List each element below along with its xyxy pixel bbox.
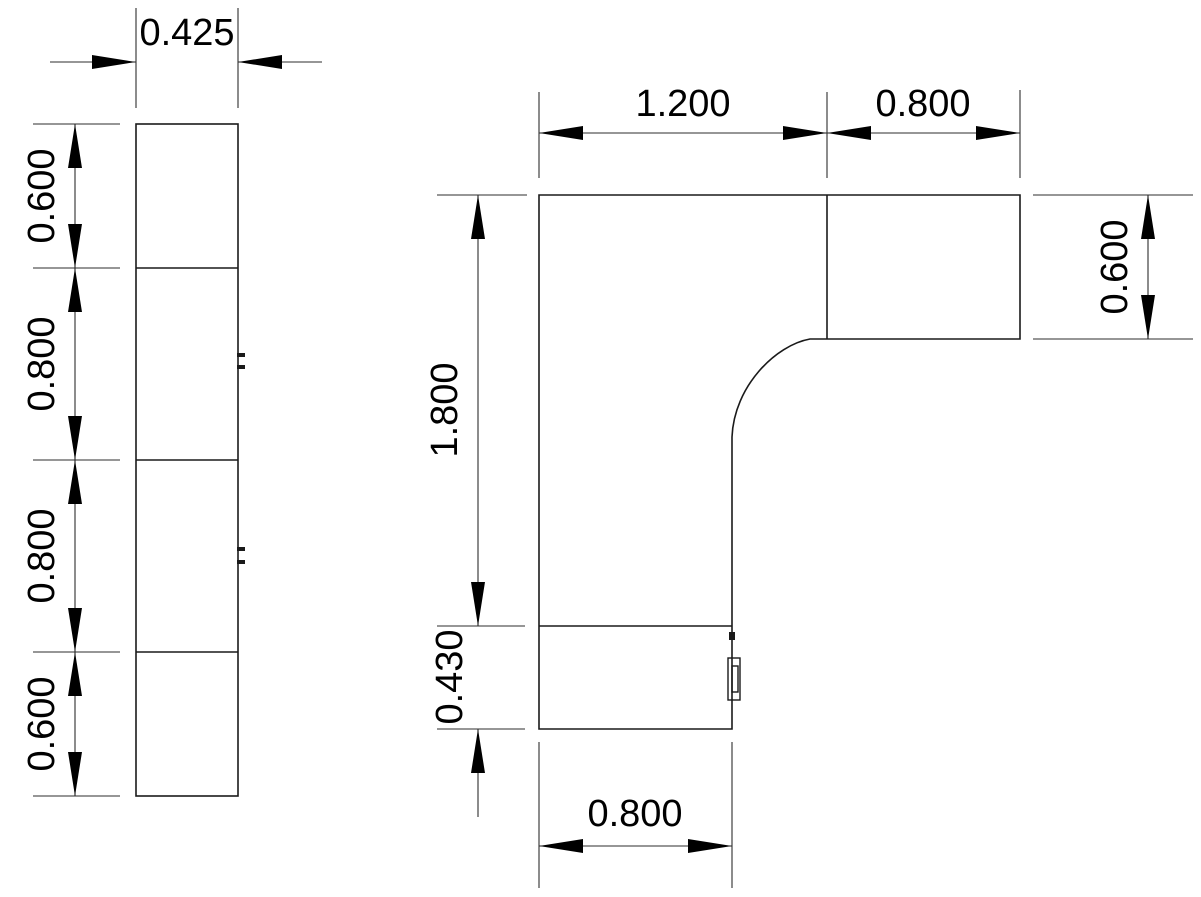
arrowhead-up-icon xyxy=(68,124,82,168)
dimension-label: 0.600 xyxy=(21,148,63,243)
arrowhead-down-icon xyxy=(68,752,82,796)
dimension-label: 0.600 xyxy=(1094,219,1136,314)
arrowhead-down-icon xyxy=(471,582,485,626)
arrowhead-right-icon xyxy=(92,55,136,69)
side-view-width-dimension: 0.425 xyxy=(50,8,322,108)
arrowhead-right-icon xyxy=(976,126,1020,140)
arrowhead-left-icon xyxy=(827,126,871,140)
plan-view-bottom-dimension: 0.800 xyxy=(539,742,732,888)
dimension-label: 1.800 xyxy=(424,362,466,457)
side-view xyxy=(136,124,245,796)
arrowhead-up-icon xyxy=(68,460,82,504)
connector-mark xyxy=(237,353,245,357)
arrowhead-up-icon xyxy=(471,195,485,239)
arrowhead-down-icon xyxy=(68,608,82,652)
arrowhead-up-icon xyxy=(68,268,82,312)
dimension-label: 0.800 xyxy=(875,83,970,125)
edge-clip-mark xyxy=(729,632,735,640)
plan-view-outline xyxy=(539,195,1020,729)
plan-view-left-dimensions: 1.800 0.430 xyxy=(424,195,527,817)
plan-view-right-dimension: 0.600 xyxy=(1033,195,1193,339)
connector-mark xyxy=(237,560,245,564)
arrowhead-right-icon xyxy=(688,839,732,853)
side-view-height-dimensions: 0.600 0.800 0.800 0.600 xyxy=(21,124,120,796)
connector-mark xyxy=(237,547,245,551)
arrowhead-up-icon xyxy=(68,652,82,696)
edge-bracket-inner xyxy=(732,666,738,692)
technical-drawing: 0.425 0.600 0.800 0.800 0.600 xyxy=(0,0,1201,897)
arrowhead-left-icon xyxy=(539,839,583,853)
arrowhead-down-icon xyxy=(68,416,82,460)
dimension-label: 1.200 xyxy=(635,83,730,125)
plan-view-top-dimensions: 1.200 0.800 xyxy=(539,83,1020,178)
dimension-label: 0.425 xyxy=(139,12,234,54)
dimension-label: 0.430 xyxy=(429,629,471,724)
arrowhead-down-icon xyxy=(68,224,82,268)
dimension-label: 0.800 xyxy=(21,508,63,603)
dimension-label: 0.800 xyxy=(587,793,682,835)
dimension-label: 0.600 xyxy=(21,676,63,771)
arrowhead-up-icon xyxy=(1141,195,1155,239)
arrowhead-left-icon xyxy=(238,55,282,69)
arrowhead-up-icon xyxy=(471,729,485,773)
arrowhead-left-icon xyxy=(539,126,583,140)
plan-view xyxy=(539,195,1020,729)
dimension-label: 0.800 xyxy=(21,316,63,411)
connector-mark xyxy=(237,365,245,369)
arrowhead-down-icon xyxy=(1141,295,1155,339)
arrowhead-right-icon xyxy=(783,126,827,140)
